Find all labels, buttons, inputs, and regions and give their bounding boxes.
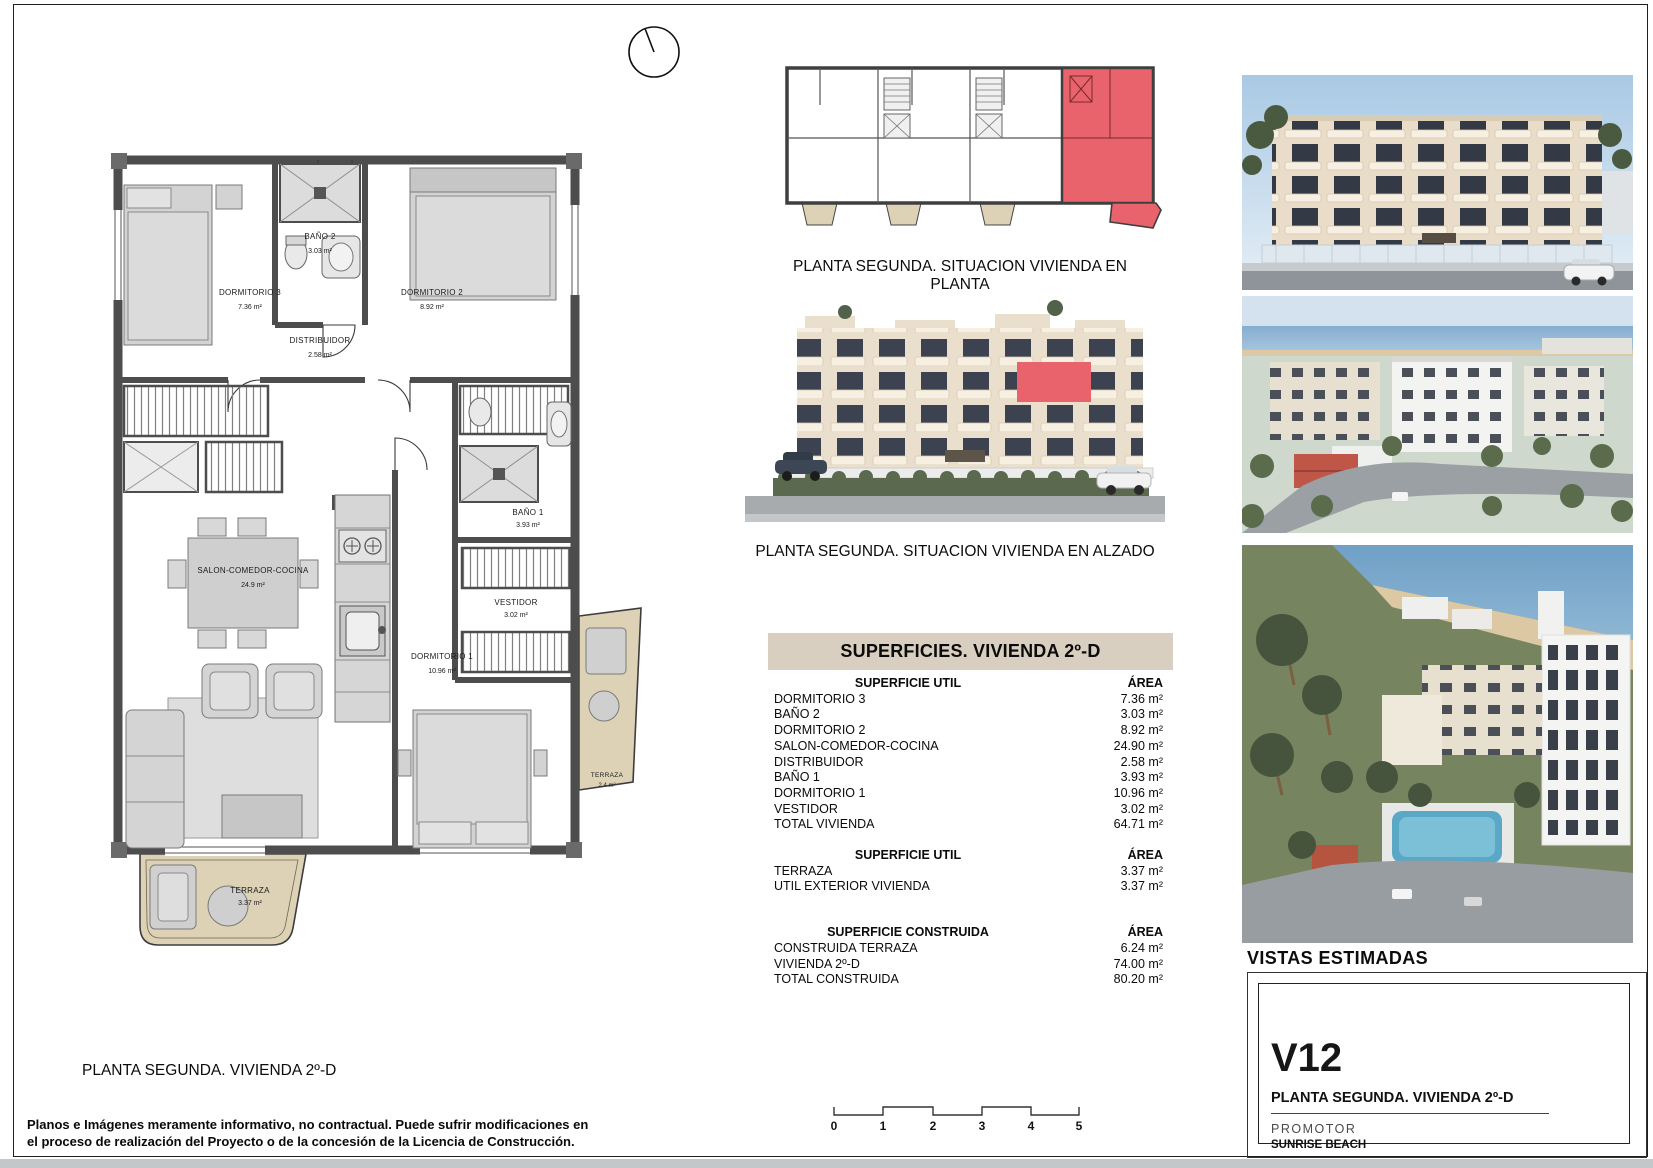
- title-block: V12 PLANTA SEGUNDA. VIVIENDA 2º-D PROMOT…: [1247, 972, 1647, 1158]
- row-label: DORMITORIO 1: [768, 786, 1053, 802]
- row-value: 24.90 m²: [1053, 739, 1173, 755]
- plan-sheet: DORMITORIO 3 7.36 m² BAÑO 2 3.03 m² DORM…: [0, 0, 1653, 1168]
- scale-label: 4: [1028, 1119, 1035, 1133]
- row-label: CONSTRUIDA TERRAZA: [768, 941, 1053, 957]
- surfaces-table: SUPERFICIES. VIVIENDA 2º-D SUPERFICIE UT…: [768, 633, 1173, 988]
- disclaimer: Planos e Imágenes meramente informativo,…: [27, 1116, 588, 1150]
- surfaces-table-title: SUPERFICIES. VIVIENDA 2º-D: [768, 633, 1173, 670]
- unit-code: V12: [1271, 1038, 1629, 1078]
- room-label: VESTIDOR: [494, 598, 537, 607]
- section-header-label: SUPERFICIE UTIL: [768, 676, 1048, 692]
- row-label: TERRAZA: [768, 864, 1053, 880]
- section-header-label: SUPERFICIE UTIL: [768, 848, 1048, 864]
- room-label: DORMITORIO 1: [411, 652, 473, 661]
- scale-bar: 0 1 2 3 4 5: [820, 1095, 1100, 1145]
- table-row: SALON-COMEDOR-COCINA24.90 m²: [768, 739, 1173, 755]
- row-label: VESTIDOR: [768, 802, 1053, 818]
- row-value: 3.03 m²: [1053, 707, 1173, 723]
- row-label: DORMITORIO 2: [768, 723, 1053, 739]
- table-row: BAÑO 13.93 m²: [768, 770, 1173, 786]
- table-row: BAÑO 23.03 m²: [768, 707, 1173, 723]
- area-header-label: ÁREA: [1048, 925, 1173, 941]
- room-label: TERRAZA: [230, 886, 269, 895]
- floor-plan-caption: PLANTA SEGUNDA. VIVIENDA 2º-D: [82, 1062, 336, 1080]
- room-label: DORMITORIO 3: [219, 288, 281, 297]
- bottom-gray-band: [0, 1159, 1653, 1168]
- table-row: VIVIENDA 2º-D74.00 m²: [768, 957, 1173, 973]
- room-label: DORMITORIO 2: [401, 288, 463, 297]
- room-area: 3.02 m²: [504, 612, 528, 619]
- photo-building-render: [1242, 75, 1633, 290]
- row-value: 7.36 m²: [1053, 692, 1173, 708]
- row-value: 6.24 m²: [1053, 941, 1173, 957]
- room-area: 24.9 m²: [241, 582, 265, 589]
- key-plan-caption: PLANTA SEGUNDA. SITUACION VIVIENDA EN PL…: [765, 258, 1155, 294]
- row-label: SALON-COMEDOR-COCINA: [768, 739, 1053, 755]
- table-row: DORMITORIO 28.92 m²: [768, 723, 1173, 739]
- room-label: DISTRIBUIDOR: [290, 336, 351, 345]
- table-row: DORMITORIO 37.36 m²: [768, 692, 1173, 708]
- table-row: DORMITORIO 110.96 m²: [768, 786, 1173, 802]
- room-label: BAÑO 1: [512, 508, 543, 517]
- row-label: DORMITORIO 3: [768, 692, 1053, 708]
- room-area: 3.37 m²: [238, 900, 262, 907]
- row-value: 10.96 m²: [1053, 786, 1173, 802]
- room-label: BAÑO 2: [304, 232, 335, 241]
- row-value: 8.92 m²: [1053, 723, 1173, 739]
- section-header-label: SUPERFICIE CONSTRUIDA: [768, 925, 1048, 941]
- room-area: 2.58 m²: [308, 352, 332, 359]
- table-row: DISTRIBUIDOR2.58 m²: [768, 755, 1173, 771]
- scale-label: 3: [979, 1119, 986, 1133]
- scale-label: 5: [1076, 1119, 1083, 1133]
- floor-plan-drawing: [110, 150, 650, 950]
- scale-label: 1: [880, 1119, 887, 1133]
- table-row: UTIL EXTERIOR VIVIENDA3.37 m²: [768, 879, 1173, 895]
- area-header-label: ÁREA: [1048, 676, 1173, 692]
- table-section-header: SUPERFICIE UTIL ÁREA: [768, 676, 1173, 692]
- row-value: 64.71 m²: [1053, 817, 1173, 833]
- row-value: 3.93 m²: [1053, 770, 1173, 786]
- area-header-label: ÁREA: [1048, 848, 1173, 864]
- row-label: TOTAL CONSTRUIDA: [768, 972, 1053, 988]
- room-area: 7.36 m²: [238, 304, 262, 311]
- row-value: 3.02 m²: [1053, 802, 1173, 818]
- row-label: UTIL EXTERIOR VIVIENDA: [768, 879, 1053, 895]
- key-plan: [780, 60, 1170, 232]
- photo-aerial-view: [1242, 296, 1633, 533]
- table-section-header: SUPERFICIE UTIL ÁREA: [768, 848, 1173, 864]
- photo-beach-view: [1242, 545, 1633, 943]
- promoter-name: SUNRISE BEACH: [1271, 1139, 1629, 1151]
- views-heading: VISTAS ESTIMADAS: [1247, 948, 1428, 969]
- scale-label: 0: [831, 1119, 838, 1133]
- table-row: CONSTRUIDA TERRAZA6.24 m²: [768, 941, 1173, 957]
- table-row: TOTAL VIVIENDA64.71 m²: [768, 817, 1173, 833]
- row-value: 3.37 m²: [1053, 864, 1173, 880]
- room-area: 3.93 m²: [516, 522, 540, 529]
- elevation-render: [745, 300, 1165, 533]
- row-label: BAÑO 1: [768, 770, 1053, 786]
- floor-plan: DORMITORIO 3 7.36 m² BAÑO 2 3.03 m² DORM…: [110, 150, 650, 950]
- row-value: 74.00 m²: [1053, 957, 1173, 973]
- room-area: 2.4 m²: [598, 783, 615, 789]
- row-label: VIVIENDA 2º-D: [768, 957, 1053, 973]
- title-block-inner: V12 PLANTA SEGUNDA. VIVIENDA 2º-D PROMOT…: [1258, 983, 1630, 1144]
- row-label: DISTRIBUIDOR: [768, 755, 1053, 771]
- row-value: 2.58 m²: [1053, 755, 1173, 771]
- table-row: VESTIDOR3.02 m²: [768, 802, 1173, 818]
- scale-bar-line: [820, 1095, 1100, 1121]
- row-label: TOTAL VIVIENDA: [768, 817, 1053, 833]
- room-area: 3.03 m²: [308, 248, 332, 255]
- room-area: 10.96 m²: [428, 668, 456, 675]
- scale-label: 2: [930, 1119, 937, 1133]
- unit-subtitle: PLANTA SEGUNDA. VIVIENDA 2º-D: [1271, 1090, 1549, 1114]
- elevation-caption: PLANTA SEGUNDA. SITUACION VIVIENDA EN AL…: [745, 543, 1165, 561]
- table-row: TERRAZA3.37 m²: [768, 864, 1173, 880]
- disclaimer-line-1: Planos e Imágenes meramente informativo,…: [27, 1116, 588, 1133]
- room-area: 8.92 m²: [420, 304, 444, 311]
- row-value: 80.20 m²: [1053, 972, 1173, 988]
- promoter-label: PROMOTOR: [1271, 1122, 1629, 1136]
- disclaimer-line-2: el proceso de realización del Proyecto o…: [27, 1133, 588, 1150]
- north-arrow-icon: [626, 24, 682, 80]
- table-row: TOTAL CONSTRUIDA80.20 m²: [768, 972, 1173, 988]
- room-label: TERRAZA: [591, 772, 623, 779]
- row-value: 3.37 m²: [1053, 879, 1173, 895]
- room-label: SALON-COMEDOR-COCINA: [197, 566, 308, 575]
- row-label: BAÑO 2: [768, 707, 1053, 723]
- table-section-header: SUPERFICIE CONSTRUIDA ÁREA: [768, 925, 1173, 941]
